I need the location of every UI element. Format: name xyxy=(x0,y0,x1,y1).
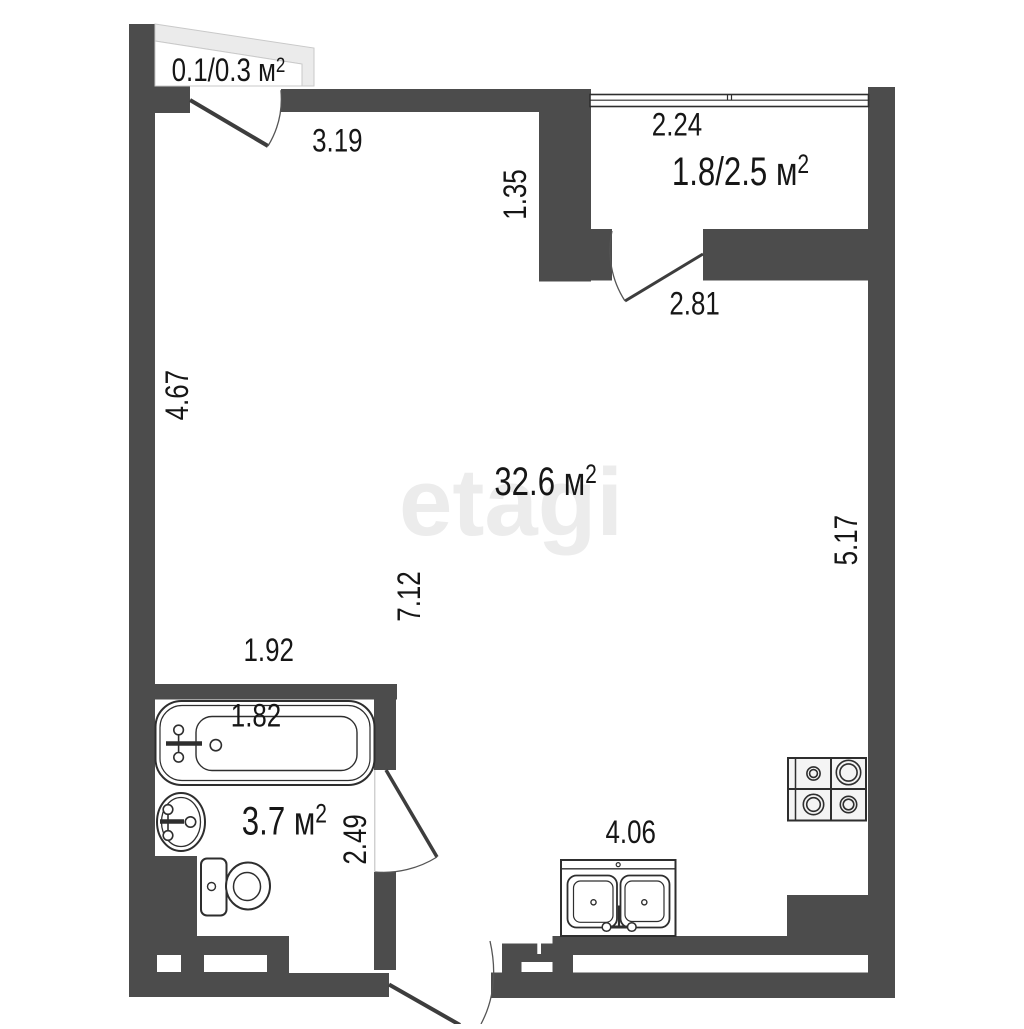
svg-text:4.06: 4.06 xyxy=(605,816,655,851)
svg-text:1.8/2.5 м2: 1.8/2.5 м2 xyxy=(672,149,809,194)
svg-text:1.92: 1.92 xyxy=(243,634,293,669)
svg-text:4.67: 4.67 xyxy=(161,370,196,420)
svg-text:1.82: 1.82 xyxy=(231,699,281,734)
svg-text:2.24: 2.24 xyxy=(652,108,702,143)
svg-text:0.1/0.3 м2: 0.1/0.3 м2 xyxy=(172,54,286,89)
svg-text:3.19: 3.19 xyxy=(312,124,362,159)
svg-text:2.81: 2.81 xyxy=(669,287,719,322)
svg-text:7.12: 7.12 xyxy=(393,571,428,621)
svg-text:2.49: 2.49 xyxy=(339,814,374,864)
svg-text:5.17: 5.17 xyxy=(830,515,865,565)
svg-text:32.6 м2: 32.6 м2 xyxy=(494,459,597,504)
svg-text:3.7 м2: 3.7 м2 xyxy=(242,799,327,844)
svg-text:1.35: 1.35 xyxy=(499,169,534,219)
